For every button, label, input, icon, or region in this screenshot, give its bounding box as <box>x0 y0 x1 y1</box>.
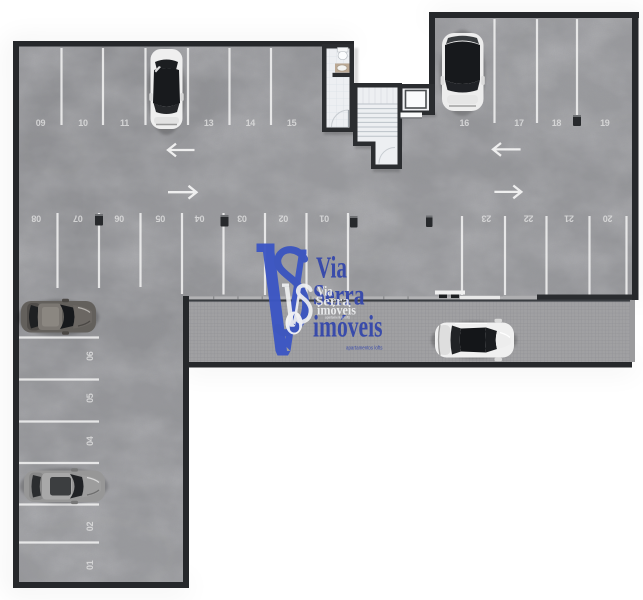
svg-text:06: 06 <box>114 214 124 224</box>
svg-text:03: 03 <box>237 214 247 224</box>
svg-text:18: 18 <box>552 118 562 128</box>
svg-text:07: 07 <box>73 214 83 224</box>
svg-text:04: 04 <box>195 214 205 224</box>
svg-text:21: 21 <box>564 214 574 224</box>
svg-text:02: 02 <box>279 214 289 224</box>
svg-text:apartamentos lofts: apartamentos lofts <box>325 316 350 320</box>
svg-text:01: 01 <box>85 560 95 570</box>
svg-text:13: 13 <box>204 118 214 128</box>
svg-text:17: 17 <box>514 118 524 128</box>
svg-text:22: 22 <box>524 214 534 224</box>
svg-text:15: 15 <box>287 118 297 128</box>
svg-text:09: 09 <box>36 118 46 128</box>
svg-text:05: 05 <box>85 393 95 403</box>
svg-text:19: 19 <box>600 118 610 128</box>
svg-text:08: 08 <box>31 214 41 224</box>
svg-text:11: 11 <box>120 118 129 128</box>
svg-text:06: 06 <box>85 351 95 361</box>
svg-text:apartamentos lofts: apartamentos lofts <box>346 346 383 352</box>
svg-text:14: 14 <box>246 118 256 128</box>
svg-text:16: 16 <box>459 118 469 128</box>
svg-text:04: 04 <box>85 436 95 446</box>
svg-text:10: 10 <box>78 118 88 128</box>
svg-text:02: 02 <box>85 522 95 532</box>
svg-text:05: 05 <box>156 214 166 224</box>
svg-text:23: 23 <box>482 214 492 224</box>
svg-text:01: 01 <box>319 214 329 224</box>
svg-text:20: 20 <box>603 214 613 224</box>
